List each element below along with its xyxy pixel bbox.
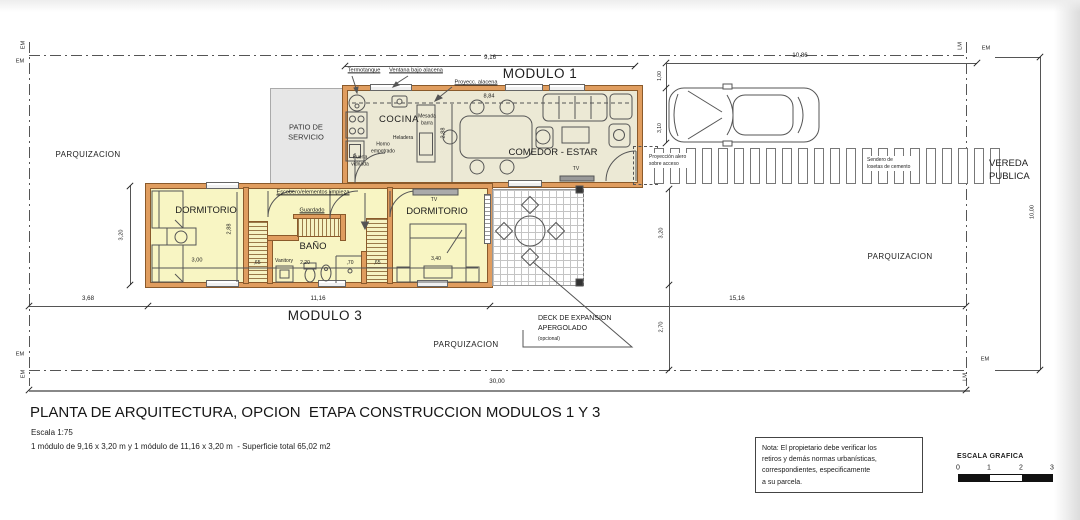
dimension-line xyxy=(29,306,966,307)
dimension-line xyxy=(130,186,131,285)
walkway-slab xyxy=(846,148,856,184)
site-label-parquizacion: PARQUIZACION xyxy=(433,340,498,350)
dim-label: 3,00 xyxy=(192,257,203,264)
scale-bar-segment xyxy=(959,475,990,481)
modulo1-title: MODULO 1 xyxy=(503,65,578,83)
partition-wall xyxy=(268,236,298,240)
walkway-slab xyxy=(830,148,840,184)
partition-wall xyxy=(341,215,345,240)
dimension-line xyxy=(29,390,970,392)
scan-shadow-right xyxy=(1054,0,1080,520)
scale-bar-tick: 2 xyxy=(1019,463,1023,472)
walkway-slab xyxy=(974,148,984,184)
tv-label: TV xyxy=(431,197,437,204)
dim-label: ,65 xyxy=(374,260,381,267)
dim-label: 2,88 xyxy=(226,224,233,235)
partition-wall xyxy=(268,238,272,283)
walkway-slab xyxy=(926,148,936,184)
annotation-horno: Horno empotrado xyxy=(371,142,395,155)
scale-bar-tick: 3 xyxy=(1050,463,1054,472)
dim-label: 15,16 xyxy=(729,295,744,303)
site-label-vereda: VEREDA PUBLICA xyxy=(989,157,1030,184)
marker-em: EM xyxy=(981,356,989,363)
annotation-guardado: Guardado xyxy=(300,207,325,214)
property-line-left xyxy=(29,42,30,386)
walkway-slab xyxy=(766,148,776,184)
dim-tick xyxy=(973,59,980,66)
marker-lm: LM xyxy=(957,42,964,50)
walkway-slab xyxy=(750,148,760,184)
window xyxy=(370,84,412,91)
scan-shadow-top xyxy=(0,0,1080,12)
dimension-line xyxy=(666,63,977,64)
annotation-termotanque: Termotanque xyxy=(348,67,381,74)
deck-label: DECK DE EXPANSION APERGOLADO xyxy=(538,314,611,334)
room-label-cocina: COCINA xyxy=(379,114,419,126)
modulo3-title: MODULO 3 xyxy=(288,307,363,325)
window xyxy=(508,180,542,187)
marker-em: EM xyxy=(20,41,27,49)
deck-label-opcional: (opcional) xyxy=(538,336,560,343)
dim-label: 10,00 xyxy=(1029,205,1036,219)
dimension-line xyxy=(995,370,1040,371)
scale-bar-tick: 1 xyxy=(987,463,991,472)
marker-em: EM xyxy=(982,45,990,52)
marker-em: EM xyxy=(16,351,24,358)
dim-label: 9,16 xyxy=(484,54,496,62)
scale-bar xyxy=(958,474,1053,482)
walkway-slab xyxy=(702,148,712,184)
guardado-closet xyxy=(297,218,341,237)
dim-label: 3,40 xyxy=(431,256,441,263)
dim-label: 2,20 xyxy=(300,260,310,267)
site-label-parquizacion: PARQUIZACION xyxy=(55,150,120,160)
annotation-puerta-vidriada: Puerta vidriada xyxy=(351,155,369,168)
walkway-slab xyxy=(686,148,696,184)
property-line-top xyxy=(29,55,966,56)
deck-area xyxy=(492,189,584,286)
partition-wall xyxy=(388,188,392,283)
dim-label: 30,00 xyxy=(489,378,504,386)
scale-bar-segment xyxy=(1022,475,1053,481)
annotation-mesada: Mesada barra xyxy=(418,114,436,127)
wardrobe xyxy=(248,221,268,283)
window xyxy=(549,84,585,91)
walkway-slab xyxy=(782,148,792,184)
dim-label: ,65 xyxy=(254,260,261,267)
floor-plan-canvas: EM EM LM EM EM EM EM LM xyxy=(0,0,1080,520)
annotation-heladera: Heladera xyxy=(393,135,413,142)
site-label-parquizacion: PARQUIZACION xyxy=(867,252,932,262)
walkway-slab xyxy=(958,148,968,184)
annotation-escobero: Escobero/elementos limpieza xyxy=(276,189,349,196)
scale-note: Escala 1:75 xyxy=(31,428,73,438)
walkway-slab xyxy=(734,148,744,184)
room-label-dormitorio: DORMITORIO xyxy=(406,206,468,218)
tv-label: TV xyxy=(573,166,579,173)
scale-bar-tick: 0 xyxy=(956,463,960,472)
room-label-dormitorio: DORMITORIO xyxy=(175,205,237,217)
site-label-sendero: Sendero de losetas de cemento xyxy=(866,156,911,171)
dim-label: 1,00 xyxy=(657,71,664,81)
walkway-slab xyxy=(942,148,952,184)
dim-label: 8,84 xyxy=(484,93,495,100)
annotation-ventana: Ventana bajo alacena xyxy=(389,67,443,74)
dim-label: 10,86 xyxy=(792,52,807,60)
walkway-slab xyxy=(798,148,808,184)
cement-walkway xyxy=(654,147,1006,185)
dimension-line xyxy=(669,189,670,370)
wardrobe xyxy=(366,218,388,283)
window xyxy=(484,194,491,244)
dim-label: ,70 xyxy=(347,260,354,267)
walkway-slab xyxy=(718,148,728,184)
property-line-municipal xyxy=(966,42,967,386)
window xyxy=(505,84,543,91)
page-title: PLANTA DE ARQUITECTURA, OPCION ETAPA CON… xyxy=(30,403,600,423)
dim-tick xyxy=(662,139,669,146)
marker-em: EM xyxy=(20,370,27,378)
dim-tick xyxy=(126,281,133,288)
annotation-proyecc-alacena: Proyecc. alacena xyxy=(455,79,498,86)
dimension-line xyxy=(666,63,667,143)
dimension-line xyxy=(995,57,1040,58)
car-icon xyxy=(669,84,819,146)
dim-label: 3,68 xyxy=(82,295,94,303)
window xyxy=(417,280,448,287)
scale-bar-segment xyxy=(990,475,1022,481)
walkway-slab xyxy=(910,148,920,184)
window xyxy=(206,280,239,287)
property-line-bottom xyxy=(29,370,966,371)
modules-note: 1 módulo de 9,16 x 3,20 m y 1 módulo de … xyxy=(31,442,331,452)
scale-bar-label: ESCALA GRAFICA xyxy=(957,452,1024,461)
dim-label: 3,20 xyxy=(118,230,125,241)
dim-label: 2,88 xyxy=(440,128,447,139)
room-label-bano: BAÑO xyxy=(300,241,327,253)
room-label-comedor: COMEDOR - ESTAR xyxy=(508,147,597,159)
site-label-proyeccion-alero: Proyección alero sobre acceso xyxy=(648,153,687,168)
dim-tick xyxy=(1036,366,1043,373)
room-label-patio: PATIO DE SERVICIO xyxy=(288,122,324,142)
modulo1-building xyxy=(343,86,642,187)
dim-label: 3,20 xyxy=(658,228,665,239)
dim-label: 3,10 xyxy=(657,123,664,133)
marker-em: EM xyxy=(16,58,24,65)
marker-lm: LM xyxy=(962,373,969,381)
dimension-line xyxy=(1040,57,1041,370)
dim-tick xyxy=(631,62,638,69)
dim-label: 2,70 xyxy=(658,322,665,333)
dim-label: 11,16 xyxy=(310,295,325,303)
annotation-vanitory: Vanitory xyxy=(275,258,293,265)
note-box: Nota: El propietario debe verificar los … xyxy=(755,437,923,493)
walkway-slab xyxy=(814,148,824,184)
window xyxy=(206,182,239,189)
window xyxy=(318,280,346,287)
